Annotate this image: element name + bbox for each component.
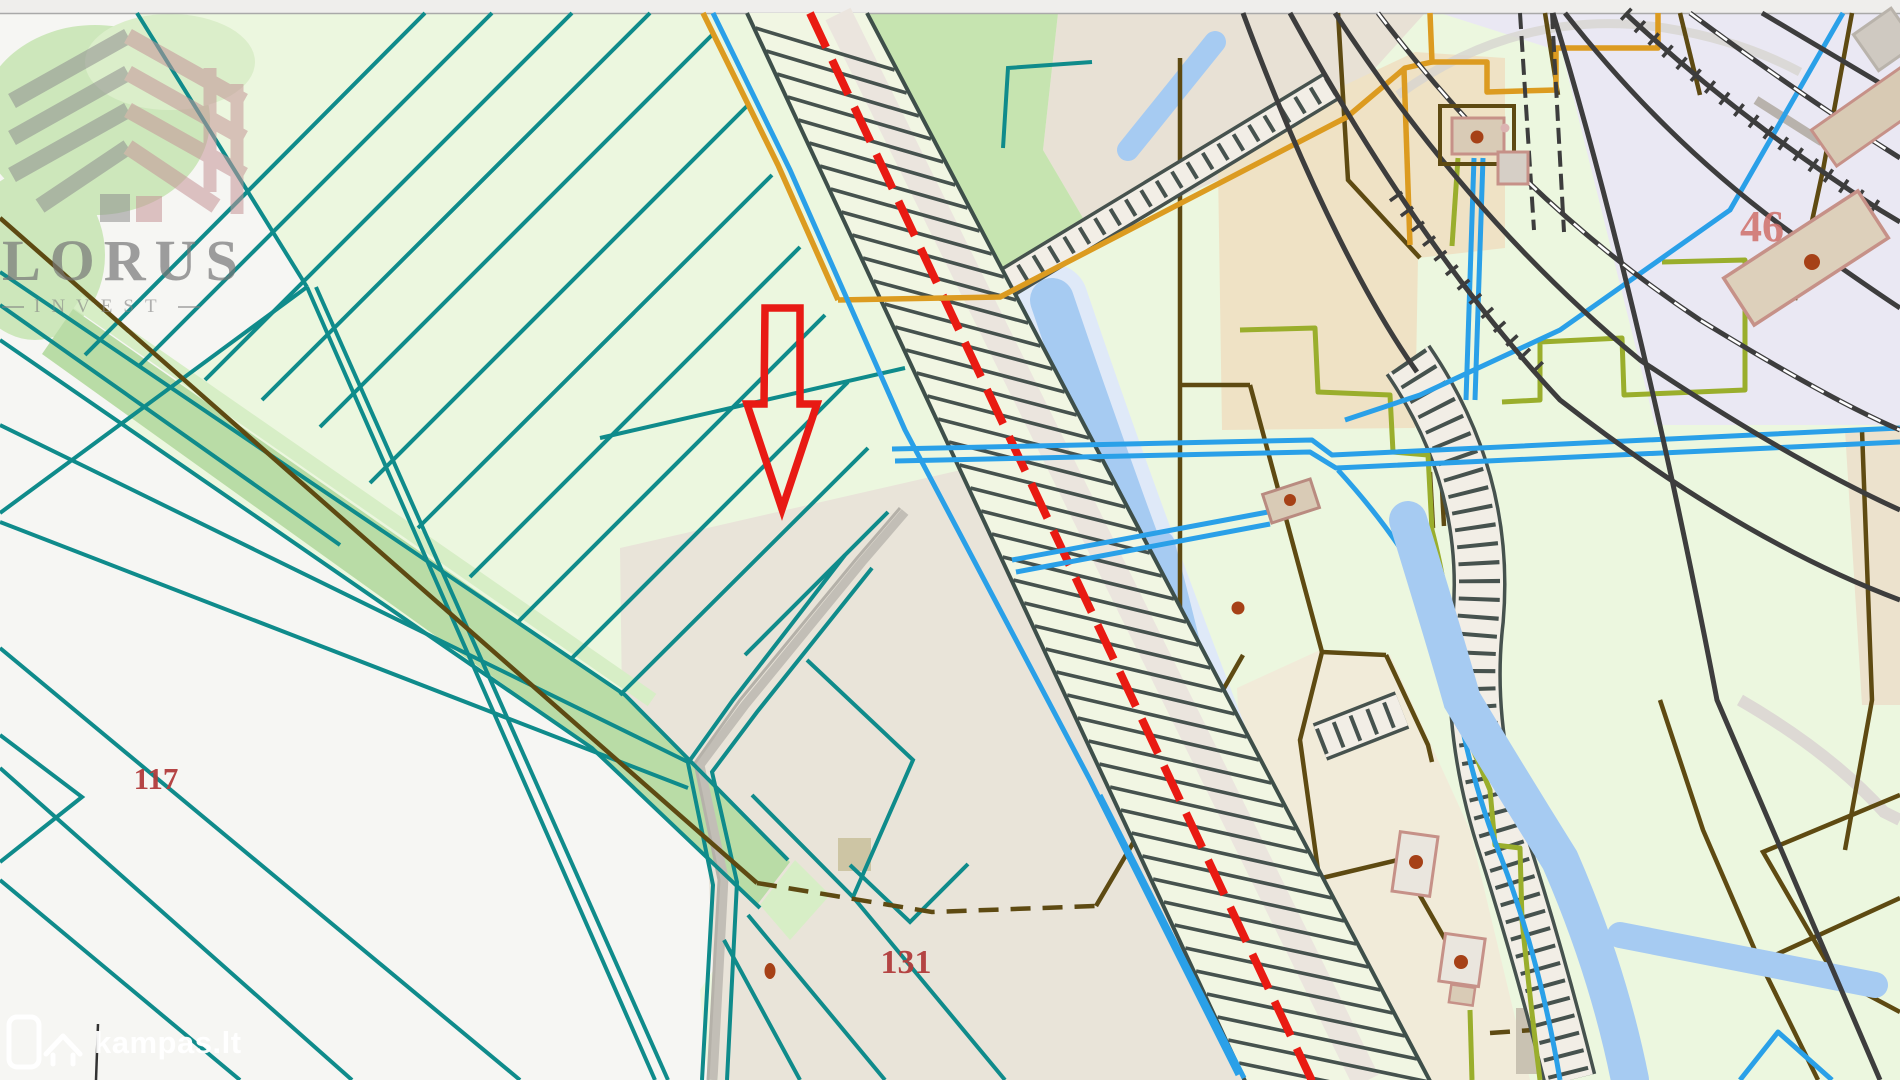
attribution-kampas: kampas.lt bbox=[6, 1014, 242, 1072]
parcel-label-46: 46 bbox=[1740, 202, 1784, 251]
attribution-text: kampas.lt bbox=[94, 1025, 242, 1061]
parcel-label-117: 117 bbox=[134, 761, 179, 796]
kampas-logo-icon bbox=[6, 1014, 84, 1072]
land-parcels-fill bbox=[0, 0, 1900, 1080]
parcel-label-131: 131 bbox=[881, 944, 932, 981]
map-viewer: 11713146 LORUS INVEST bbox=[0, 0, 1900, 1080]
map-canvas[interactable]: 11713146 bbox=[0, 0, 1900, 1080]
target-parcel-arrow bbox=[747, 308, 817, 509]
